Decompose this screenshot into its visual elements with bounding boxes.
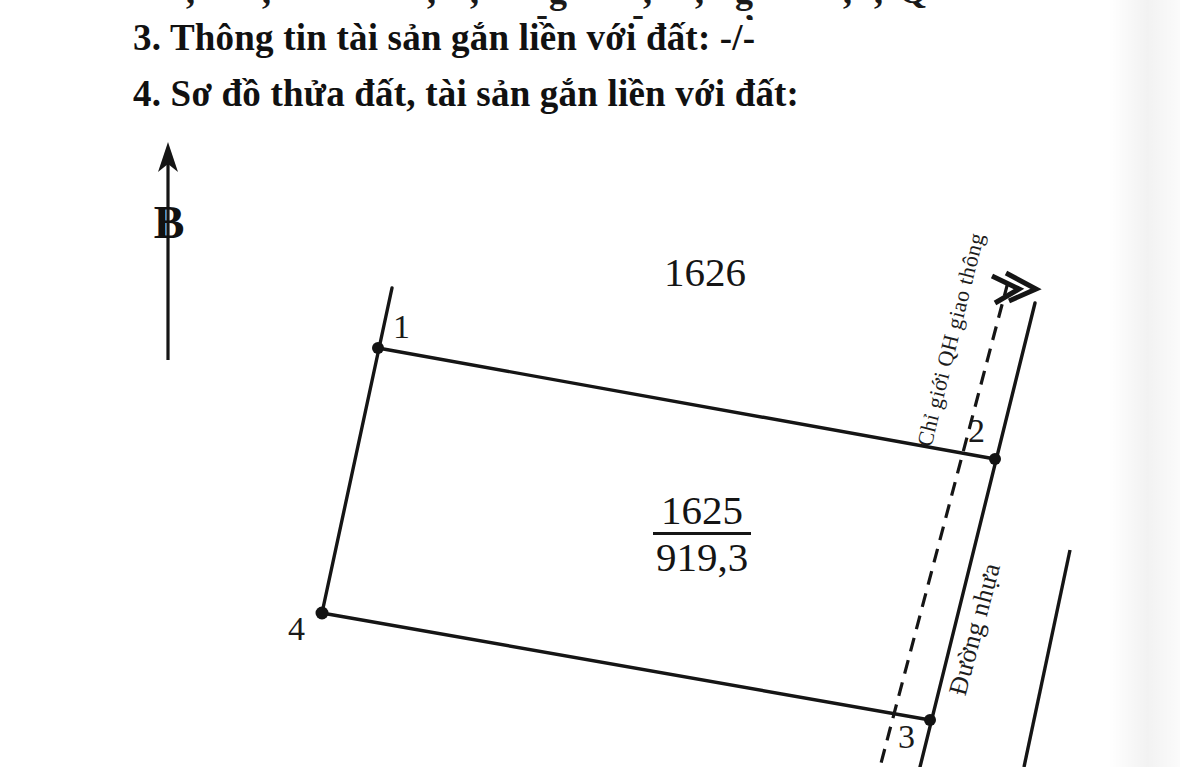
corner-label-1: 1: [393, 310, 410, 344]
parcel-diagram: [0, 0, 1180, 767]
boundary-edge-4-3: [322, 613, 930, 720]
parcel-area: 919,3: [646, 535, 758, 579]
corner-label-4: 4: [288, 612, 305, 646]
north-arrow: [158, 142, 178, 360]
parcel-label: 1625 919,3: [646, 488, 758, 579]
corner-label-2: 2: [968, 414, 985, 448]
parcel-number: 1625: [646, 488, 758, 532]
planning-boundary-arrow-icon: [992, 273, 1036, 303]
road-edge-line: [1024, 550, 1070, 767]
corner-label-3: 3: [898, 720, 915, 754]
corner-dot-1: [372, 342, 384, 354]
corner-dot-3: [924, 714, 936, 726]
boundary-edge-1-2: [378, 348, 995, 459]
corner-dot-4: [316, 607, 329, 620]
corner-dot-2: [989, 453, 1001, 465]
adjacent-parcel-number: 1626: [660, 252, 750, 292]
boundary-edge-4-1: [322, 288, 392, 613]
north-label: B: [147, 200, 191, 246]
